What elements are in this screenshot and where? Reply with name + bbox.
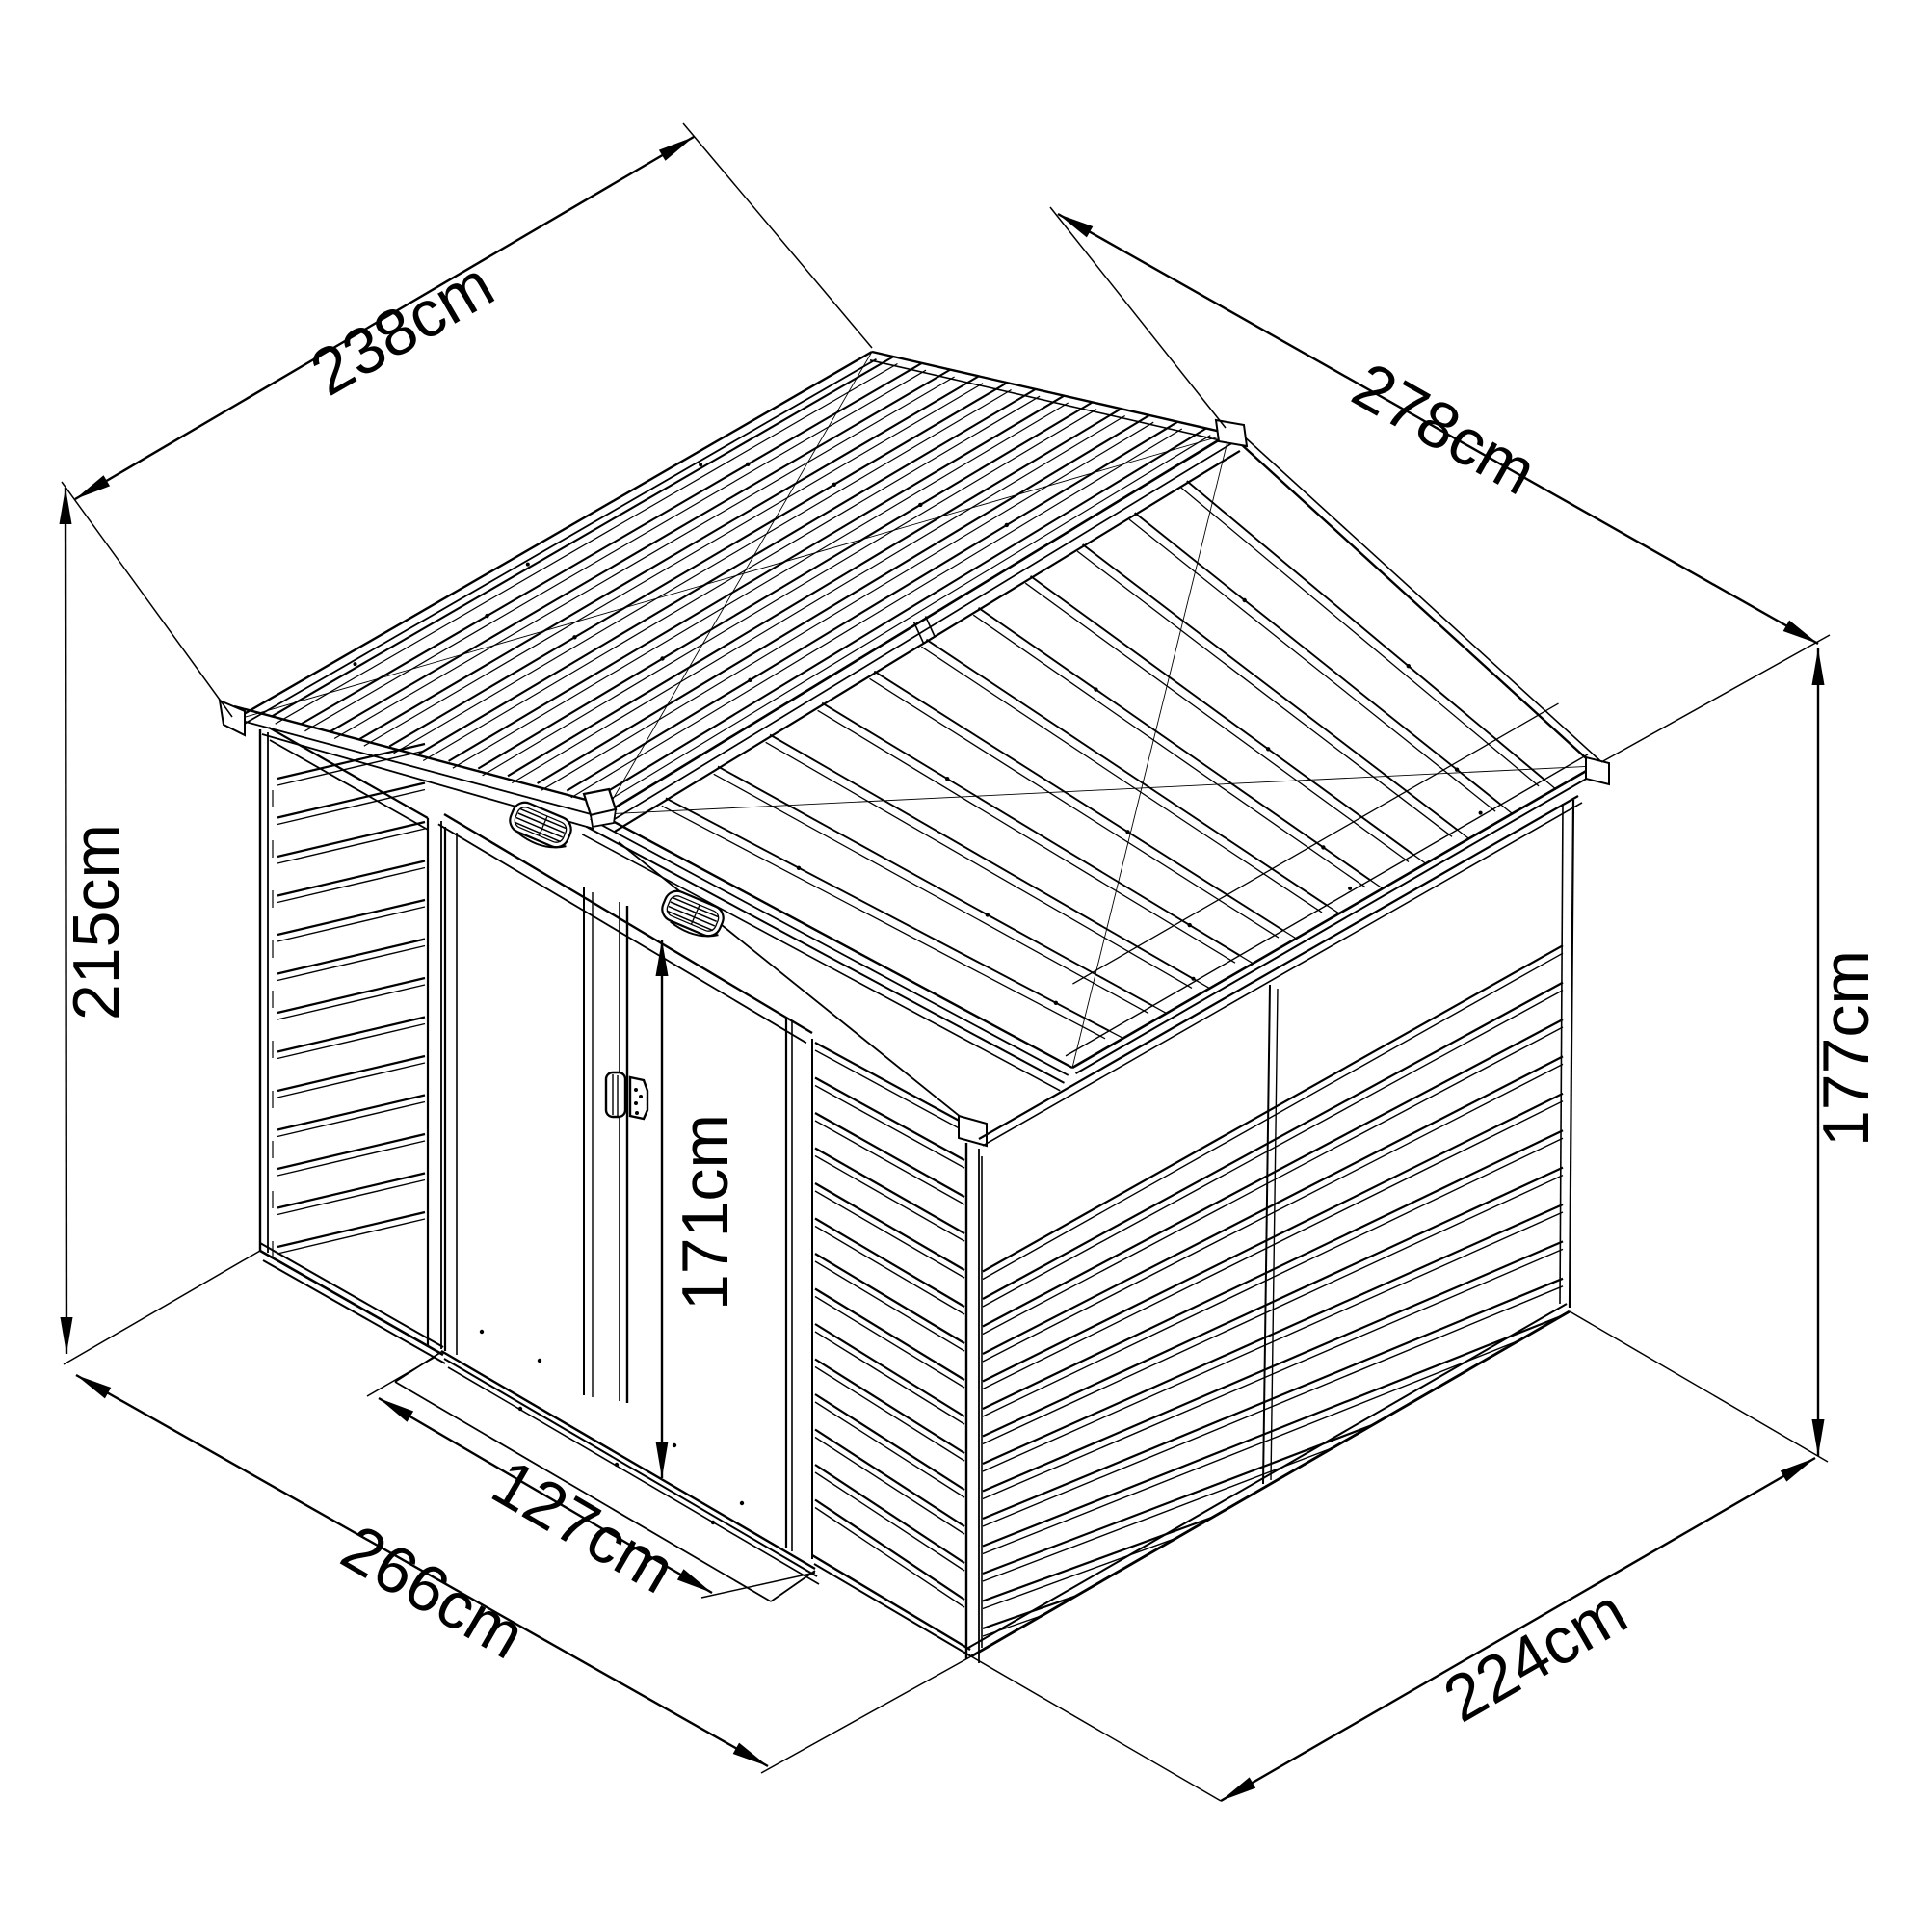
svg-text:171cm: 171cm: [669, 1114, 742, 1310]
svg-text:215cm: 215cm: [60, 824, 133, 1020]
svg-text:177cm: 177cm: [1809, 950, 1883, 1147]
